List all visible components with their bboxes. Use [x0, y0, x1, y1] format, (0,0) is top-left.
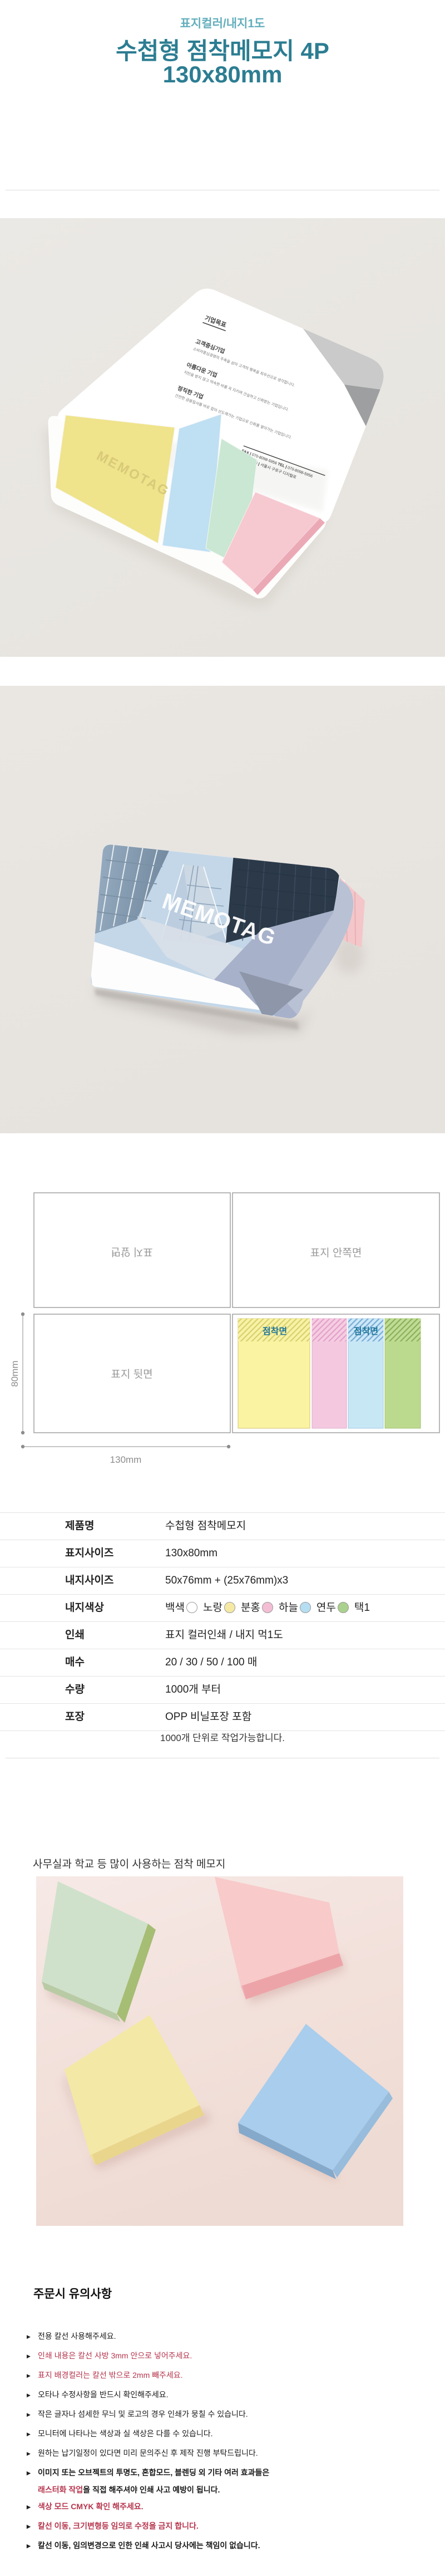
svg-text:표지 앞면: 표지 앞면	[111, 1246, 152, 1258]
svg-text:80mm: 80mm	[9, 1360, 20, 1387]
svg-text:표지 뒷면: 표지 뒷면	[111, 1368, 152, 1380]
svg-text:표지 안쪽면: 표지 안쪽면	[310, 1247, 362, 1259]
svg-text:130mm: 130mm	[110, 1454, 142, 1465]
svg-text:점착면: 점착면	[354, 1326, 378, 1336]
svg-text:점착면: 점착면	[263, 1326, 287, 1336]
